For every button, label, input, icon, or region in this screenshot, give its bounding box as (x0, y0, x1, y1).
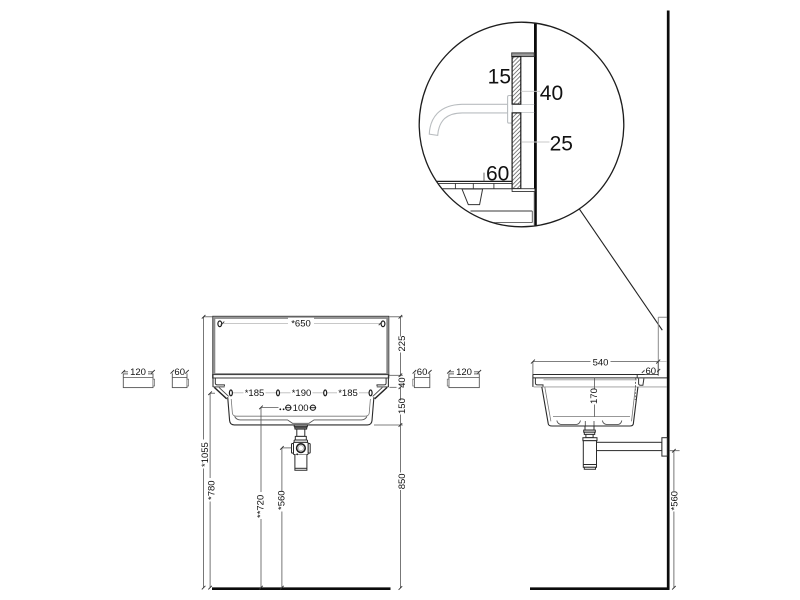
svg-text:60: 60 (486, 162, 509, 185)
svg-text:150: 150 (397, 398, 408, 414)
svg-text:850: 850 (397, 473, 408, 489)
svg-text:225: 225 (397, 336, 408, 352)
svg-text:60: 60 (174, 367, 185, 378)
svg-text:*185: *185 (245, 388, 265, 399)
svg-text:*560: *560 (669, 491, 680, 511)
svg-text:*780: *780 (207, 480, 218, 500)
svg-text:**720: **720 (256, 495, 267, 518)
svg-text:*650: *650 (291, 319, 311, 330)
svg-text:*560: *560 (277, 490, 288, 510)
svg-text:120: 120 (130, 367, 146, 378)
svg-text:60: 60 (417, 367, 428, 378)
svg-text:40: 40 (540, 82, 563, 105)
svg-text:25: 25 (550, 132, 573, 155)
svg-text:120: 120 (456, 367, 472, 378)
svg-text:170: 170 (589, 388, 600, 404)
svg-text:*185: *185 (338, 388, 358, 399)
svg-text:*1055: *1055 (200, 442, 211, 467)
svg-text:540: 540 (593, 357, 609, 368)
svg-text:15: 15 (488, 66, 511, 89)
svg-text:100: 100 (293, 403, 309, 414)
svg-text:*190: *190 (292, 388, 312, 399)
svg-text:60: 60 (646, 366, 657, 377)
svg-text:40: 40 (397, 377, 408, 388)
